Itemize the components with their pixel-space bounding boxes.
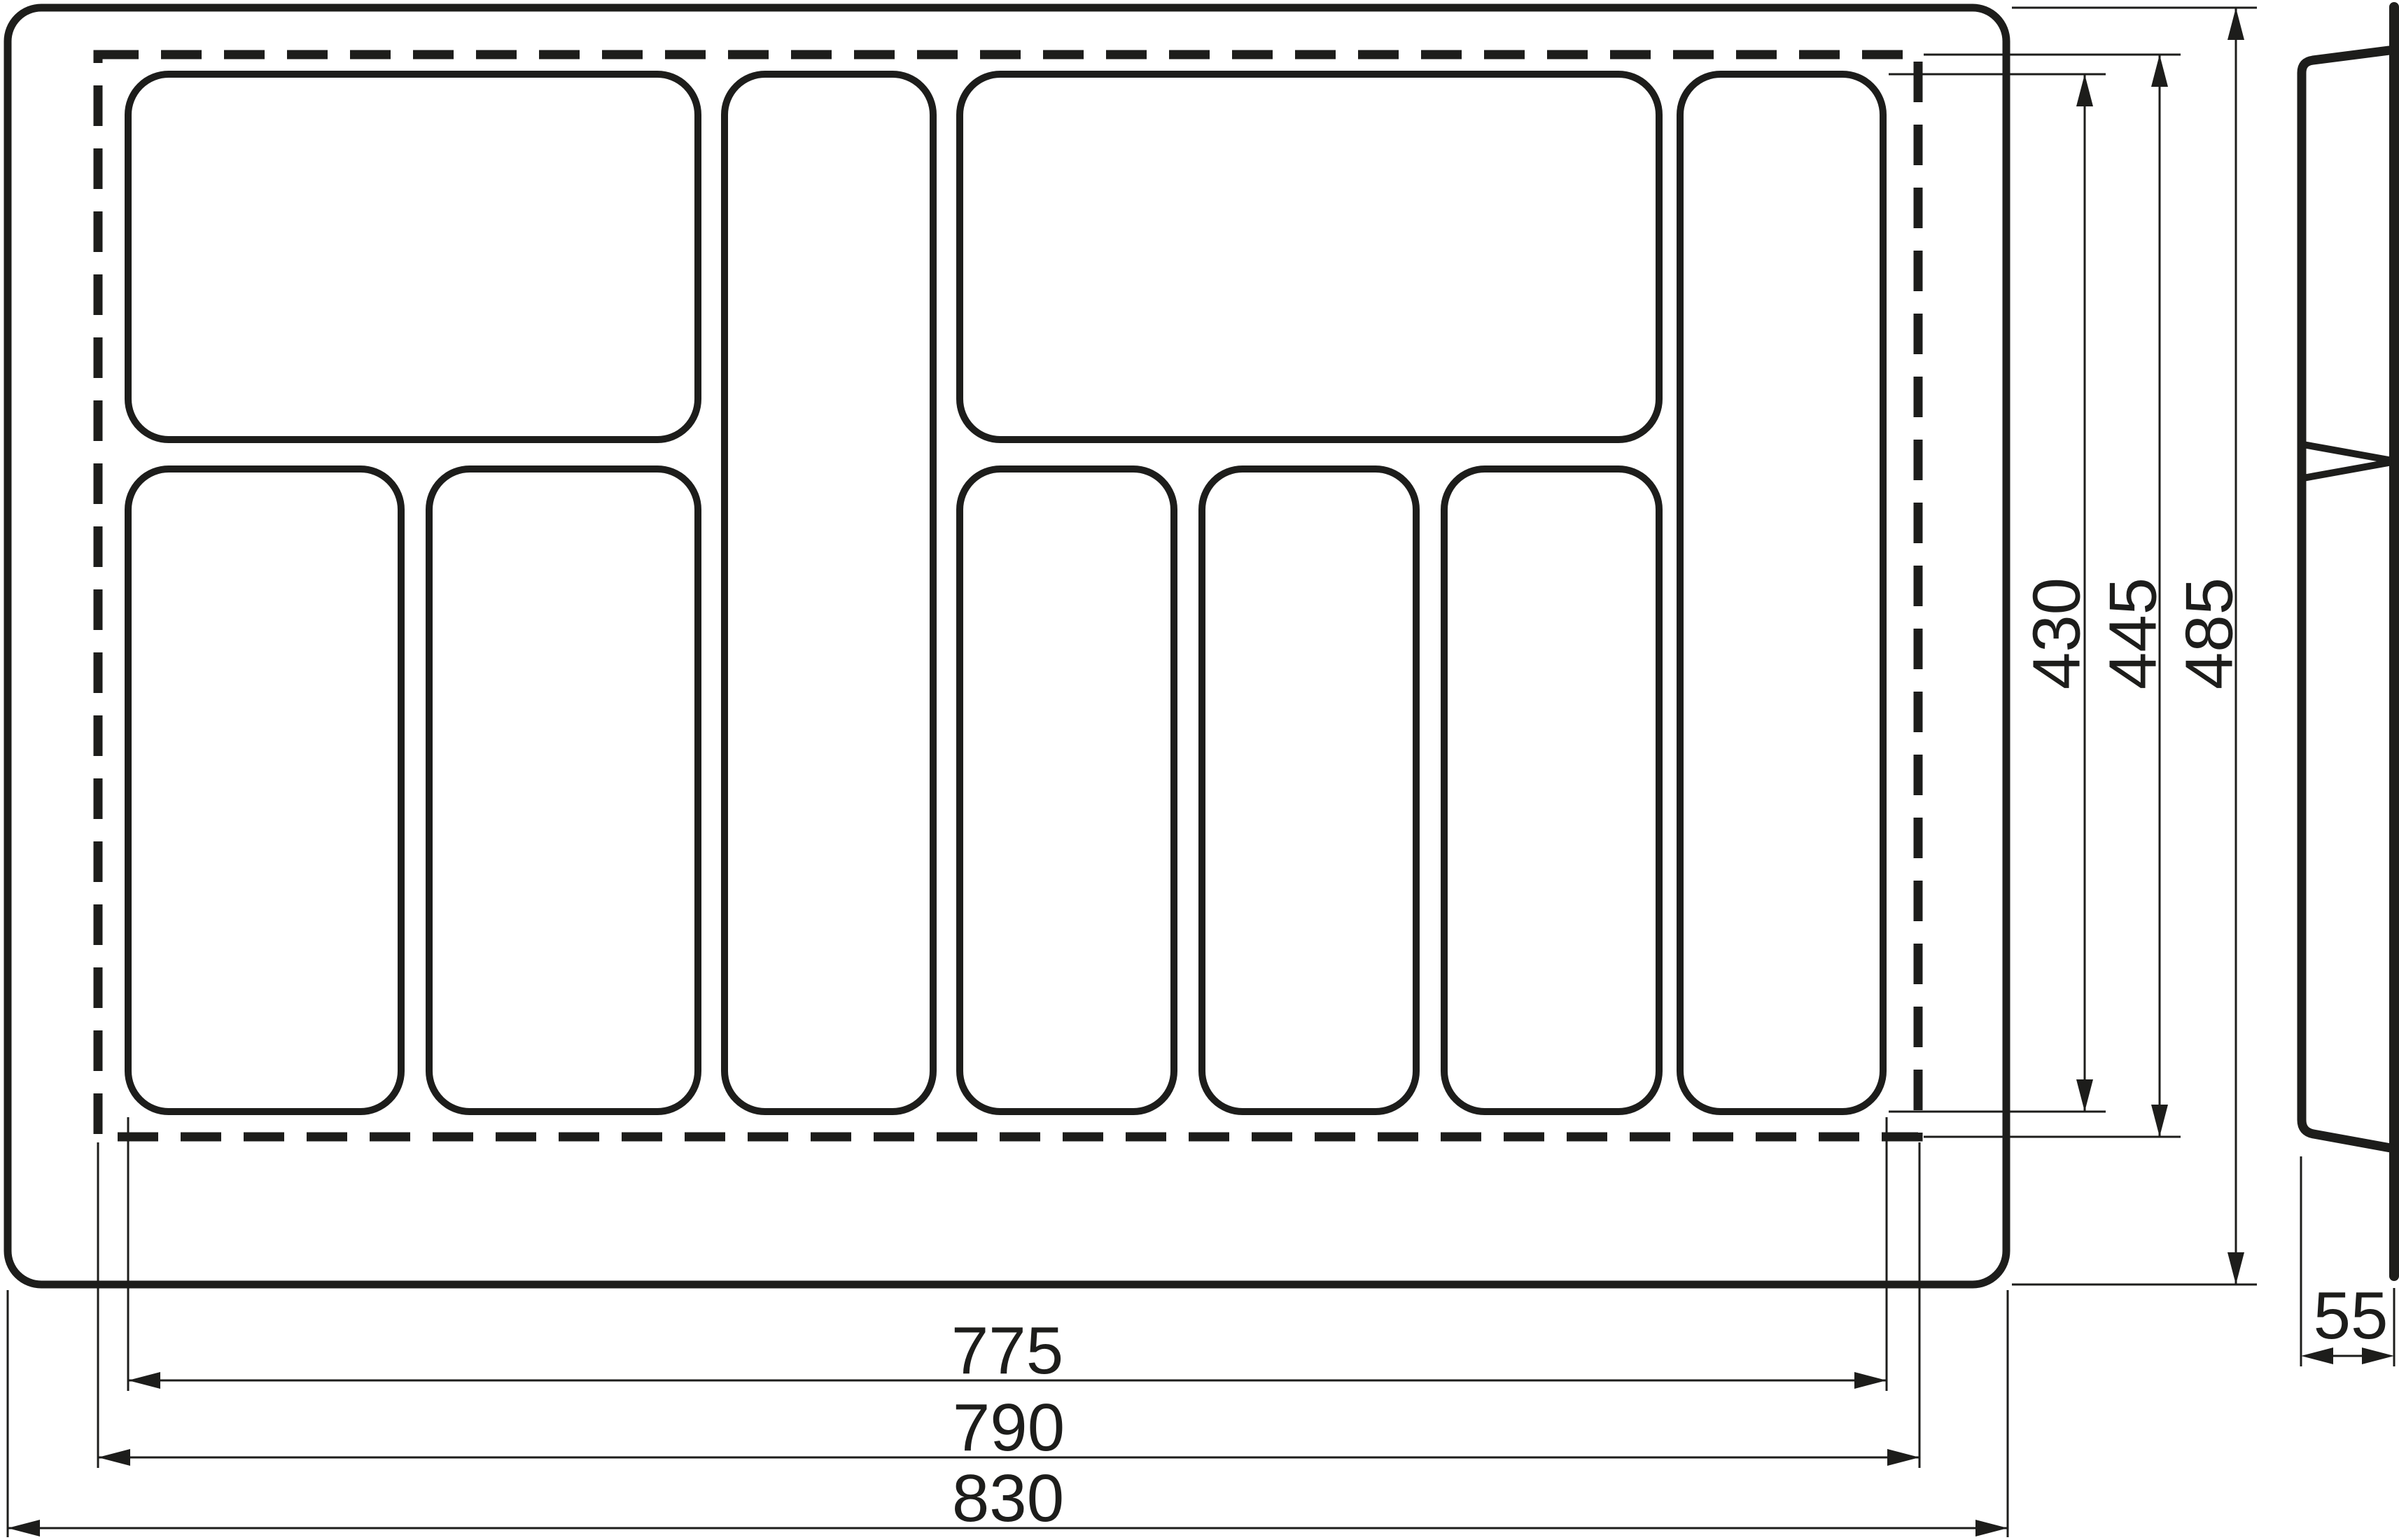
dim-830-label: 830 — [952, 1461, 1064, 1536]
dim-790-arrow-left — [98, 1449, 130, 1466]
dim-430-arrow-bottom — [2076, 1079, 2093, 1112]
tray-outline — [8, 8, 2006, 1284]
front-view — [8, 8, 2006, 1284]
side-view-notch-lower — [2303, 463, 2388, 478]
compartment-4 — [725, 74, 933, 1112]
dim-485-arrow-bottom — [2227, 1252, 2244, 1284]
compartment-2 — [128, 469, 401, 1112]
compartment-8 — [1444, 469, 1659, 1112]
dim-790-label: 790 — [953, 1390, 1065, 1465]
cutlery-tray-drawing: 430 445 485 775 — [0, 0, 2399, 1540]
side-view-notch-upper — [2303, 444, 2388, 460]
dim-445-label: 445 — [2096, 577, 2171, 689]
dim-445-arrow-top — [2151, 55, 2168, 87]
compartment-6 — [960, 469, 1174, 1112]
dim-trim-width: 790 — [98, 1142, 1919, 1468]
dim-830-arrow-left — [8, 1520, 40, 1536]
dim-side-depth: 55 — [2301, 1156, 2394, 1366]
compartment-5 — [960, 74, 1659, 440]
compartment-1 — [128, 74, 698, 440]
dim-430-arrow-top — [2076, 74, 2093, 106]
dim-430-label: 430 — [2020, 577, 2094, 689]
compartments — [128, 74, 1883, 1112]
dim-790-arrow-right — [1887, 1449, 1919, 1466]
dim-compartment-area-width: 775 — [128, 1117, 1887, 1391]
trim-dashed-line — [98, 55, 1918, 1137]
dim-830-arrow-right — [1975, 1520, 2008, 1536]
dim-485-arrow-top — [2227, 8, 2244, 40]
dim-775-arrow-left — [128, 1372, 160, 1389]
compartment-3 — [429, 469, 698, 1112]
compartment-9 — [1680, 74, 1883, 1112]
compartment-7 — [1202, 469, 1416, 1112]
side-view — [2302, 7, 2394, 1276]
technical-drawing-canvas: 430 445 485 775 — [0, 0, 2399, 1540]
dim-775-label: 775 — [951, 1313, 1063, 1388]
side-view-inner-profile — [2302, 50, 2391, 1148]
dim-445-arrow-bottom — [2151, 1105, 2168, 1137]
dim-55-label: 55 — [2314, 1278, 2388, 1353]
dim-775-arrow-right — [1854, 1372, 1887, 1389]
dim-485-label: 485 — [2172, 577, 2247, 689]
